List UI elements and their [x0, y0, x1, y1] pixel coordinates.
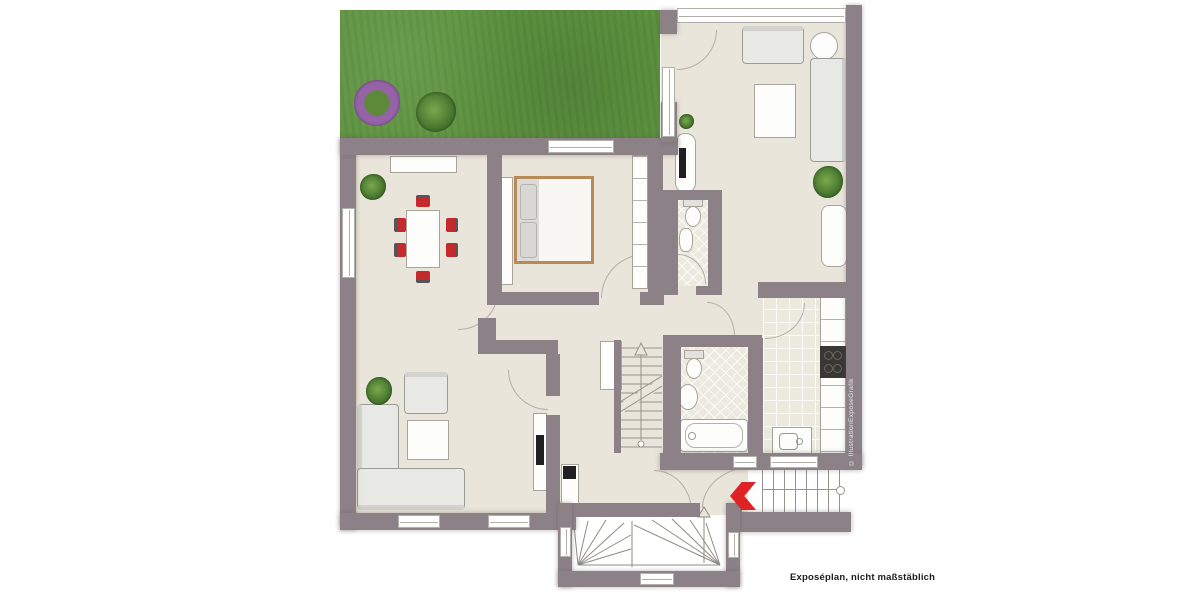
stairs-up-arrow: [635, 343, 647, 355]
coffee-table-living: [407, 420, 449, 460]
wall-hall-niche: [478, 318, 496, 340]
double-bed: [514, 176, 594, 264]
kitchen-tap: [796, 438, 803, 445]
stair-railing: [762, 489, 838, 490]
floor-plan: Exposéplan, nicht maßstäblich © Illustra…: [0, 0, 1200, 600]
wall-guest-room-south: [758, 282, 846, 298]
bath-toilet: [686, 358, 702, 379]
railing-post: [836, 486, 845, 495]
window-band-guest-north: [677, 8, 846, 23]
window-west: [342, 208, 355, 278]
window-living-south-2: [488, 515, 530, 528]
wall-terrace-column-top: [660, 10, 677, 34]
internal-staircase: [620, 338, 662, 456]
guest-sofa: [742, 26, 804, 64]
bed-pillow: [520, 184, 537, 220]
dining-chair: [394, 218, 406, 232]
wall-exterior-west: [340, 138, 356, 530]
bathtub-faucet: [688, 432, 696, 440]
kitchen-sink-unit: [772, 427, 812, 454]
bathtub: [680, 419, 748, 452]
wall-stairs-west: [614, 340, 621, 453]
bath-sink: [678, 384, 698, 410]
armchair-living: [404, 372, 448, 414]
window-basement-east: [728, 532, 739, 558]
round-side-table: [810, 32, 838, 60]
wc-toilet: [685, 206, 701, 227]
wall-dining-bedroom: [487, 153, 502, 295]
window-basement-south: [640, 573, 674, 585]
wall-wc-west: [661, 190, 678, 295]
dining-chair: [416, 271, 430, 283]
tv-screen-living: [536, 435, 544, 465]
wall-bathroom-west: [663, 340, 681, 467]
window-basement-west: [560, 527, 571, 557]
wall-hall-east-lower: [546, 415, 560, 515]
wall-wc-south-right: [696, 286, 722, 295]
dining-chair: [446, 243, 458, 257]
wall-watermark: © IllustrationExposeGrafik: [848, 376, 855, 466]
wall-hall-east-upper: [546, 354, 560, 396]
living-corner-sofa-horizontal: [357, 468, 465, 510]
window-bedroom-north: [548, 140, 614, 153]
window-bath-south: [733, 456, 757, 468]
tv-screen: [679, 148, 686, 178]
guest-corner-sofa: [810, 58, 847, 162]
stove: [820, 346, 846, 378]
dining-chair: [416, 195, 430, 207]
wall-hall-north: [478, 340, 558, 354]
wall-bedroom-south: [487, 292, 599, 305]
wall-basement-north: [558, 503, 700, 517]
wall-below-external-stairs: [731, 512, 851, 532]
dining-chair: [394, 243, 406, 257]
dining-chair: [446, 218, 458, 232]
dining-table: [406, 210, 440, 268]
wall-wc-south-left: [661, 286, 675, 295]
external-staircase: [762, 468, 845, 512]
wardrobe-right: [632, 155, 648, 289]
wall-garden-south: [340, 138, 678, 155]
bed-pillow: [520, 222, 537, 258]
wc-sink: [679, 228, 693, 252]
wall-kitchen-west: [748, 338, 763, 467]
garden-lawn: [340, 10, 660, 148]
window-terrace-column: [662, 67, 675, 137]
coffee-table-guest: [754, 84, 796, 138]
wall-wc-east: [708, 193, 722, 295]
hall-cabinet-box: [563, 466, 576, 479]
wall-exterior-south-west: [340, 513, 576, 530]
footer-note: Exposéplan, nicht maßstäblich: [790, 572, 935, 583]
armchair-guest: [821, 205, 847, 267]
window-living-south-1: [398, 515, 440, 528]
window-kitchen-south: [770, 456, 818, 468]
sideboard: [390, 156, 457, 173]
